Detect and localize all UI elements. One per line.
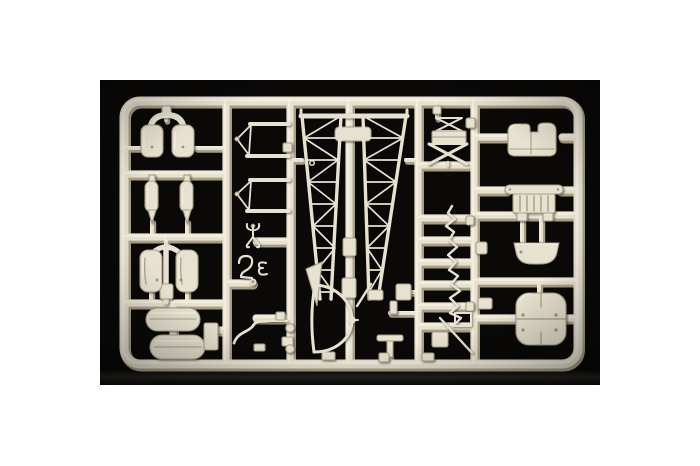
page: { "scene": { "description": "Photograph … xyxy=(0,0,700,466)
sprue-svg xyxy=(100,80,600,385)
sprue-photo xyxy=(100,80,600,385)
vignette-overlay xyxy=(100,80,600,385)
